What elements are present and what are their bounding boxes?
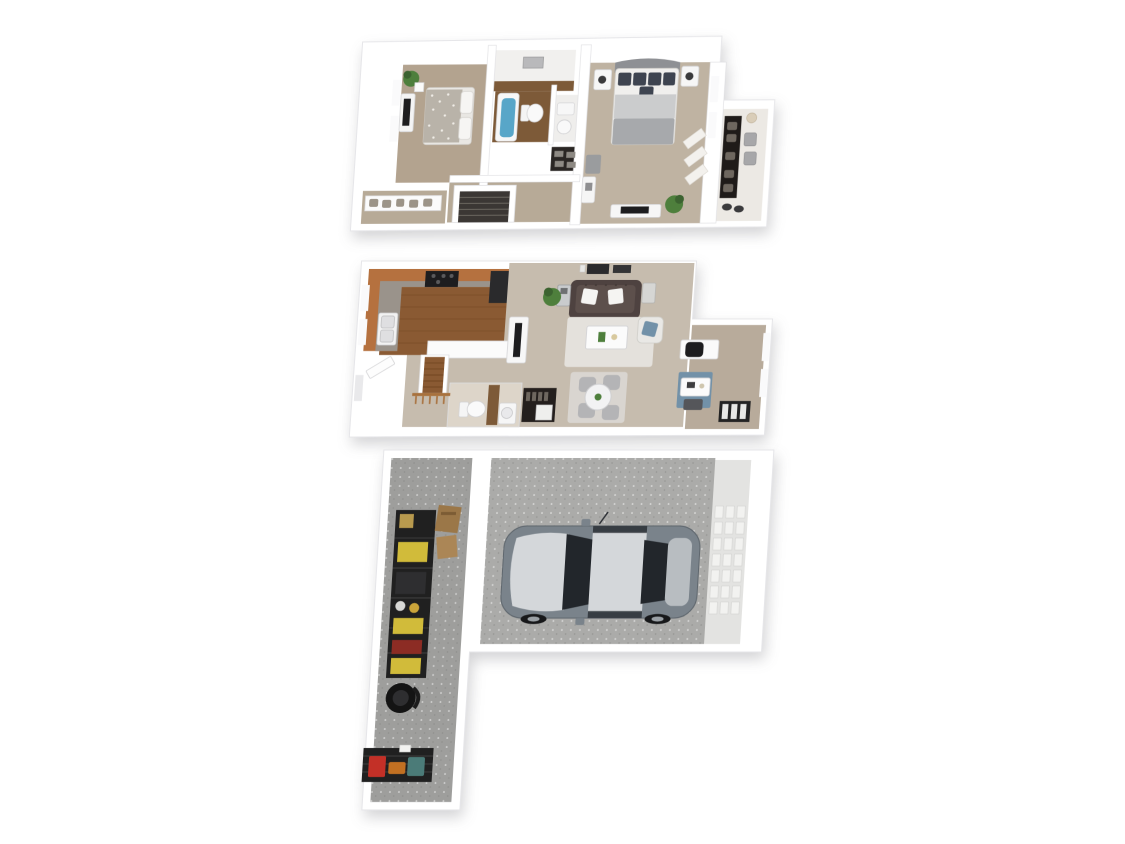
bed-right	[610, 58, 681, 144]
tv-console	[506, 317, 528, 363]
writing-desk	[680, 378, 710, 396]
ceiling-vent	[523, 57, 544, 68]
floor-upper-bedrooms	[347, 34, 782, 238]
nightstand-left	[594, 70, 612, 90]
car-trunk	[664, 538, 692, 606]
pedestal-sink-main	[498, 403, 516, 424]
car-roof	[588, 532, 647, 612]
car-hood	[508, 533, 569, 612]
end-table-right	[642, 283, 656, 303]
armchair	[637, 317, 664, 343]
vanity-nook-floor	[553, 95, 578, 142]
car-mirror-top	[581, 519, 590, 526]
orange-tool	[388, 762, 406, 774]
kitchen	[363, 269, 513, 358]
wall-art	[580, 264, 632, 274]
toilet-upper	[520, 104, 543, 122]
hall-wood-floor	[493, 81, 574, 91]
red-toolbox	[368, 756, 386, 777]
wire-basket-rack	[362, 745, 434, 782]
car-mirror-bottom	[575, 618, 584, 625]
vanity-desk-right-bedroom	[581, 177, 596, 203]
chesterfield-sofa	[569, 280, 643, 319]
half-bath	[447, 383, 522, 427]
toilet-main	[459, 401, 486, 417]
bathtub	[495, 93, 519, 141]
bookshelf	[718, 401, 750, 422]
coat-closet	[521, 388, 556, 422]
coffee-table	[585, 326, 628, 349]
teal-case	[407, 757, 425, 776]
sedan-car	[499, 512, 702, 625]
refrigerator	[489, 271, 509, 303]
office-chair	[685, 342, 704, 357]
floor-plan-canvas	[0, 0, 1125, 844]
double-sink	[377, 313, 398, 345]
bench-ottoman	[585, 155, 601, 174]
bed-left	[423, 87, 475, 144]
dining-area	[567, 372, 628, 423]
floor-garage-level	[323, 448, 778, 816]
range-black	[425, 271, 459, 287]
closet-shelf-clothes	[365, 196, 442, 211]
dresser-tv-left	[399, 94, 415, 132]
long-dresser	[610, 204, 661, 217]
desk-mat	[683, 399, 703, 410]
floor-main-living	[347, 255, 780, 443]
stairwell-upper	[452, 185, 516, 222]
nightstand-right	[681, 66, 699, 86]
